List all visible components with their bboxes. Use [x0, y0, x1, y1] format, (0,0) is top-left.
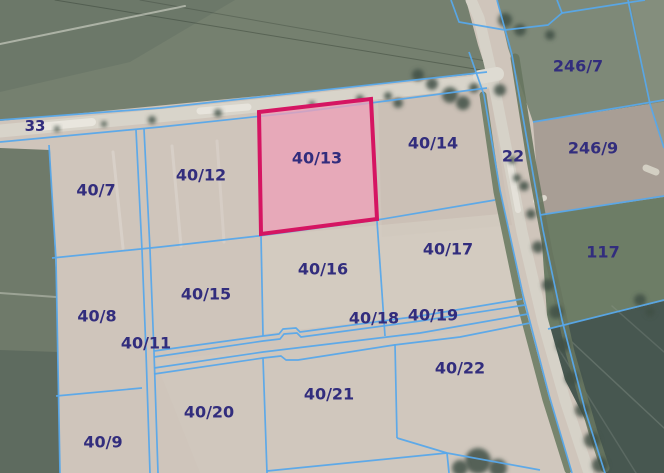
tree-clump	[519, 181, 529, 191]
parcel-label-40-7[interactable]: 40/7	[76, 181, 115, 200]
road-33-bright-1	[38, 122, 92, 127]
tree-clump	[426, 78, 438, 90]
parcel-label-40-15[interactable]: 40/15	[181, 285, 231, 304]
parcel-label-33[interactable]: 33	[25, 117, 46, 135]
parcel-label-246-7[interactable]: 246/7	[553, 57, 603, 76]
tree-clump	[469, 83, 479, 93]
cadastral-map-viewport: 3340/740/1240/1340/1422246/7246/911740/1…	[0, 0, 664, 473]
tree-clump	[214, 109, 222, 117]
tree-clump	[494, 84, 506, 96]
tree-clump	[542, 279, 554, 291]
parcel-label-40-22[interactable]: 40/22	[435, 359, 485, 378]
parcel-label-40-11[interactable]: 40/11	[121, 334, 171, 353]
parcel-label-40-13[interactable]: 40/13	[292, 149, 342, 168]
tree-clump	[545, 30, 555, 40]
tree-clump	[384, 92, 392, 100]
parcel-label-40-8[interactable]: 40/8	[77, 307, 116, 326]
tree-clump	[148, 116, 156, 124]
parcel-label-117[interactable]: 117	[586, 243, 619, 262]
parcel-label-40-19[interactable]: 40/19	[408, 306, 458, 325]
tree-clump	[513, 174, 521, 182]
parcel-label-40-20[interactable]: 40/20	[184, 403, 234, 422]
tree-clump	[514, 24, 526, 36]
tree-clump	[456, 96, 470, 110]
map-canvas[interactable]: 3340/740/1240/1340/1422246/7246/911740/1…	[0, 0, 664, 473]
parcel-label-40-17[interactable]: 40/17	[423, 240, 473, 259]
parcel-label-40-16[interactable]: 40/16	[298, 260, 348, 279]
parcel-label-246-9[interactable]: 246/9	[568, 139, 618, 158]
parcel-label-40-21[interactable]: 40/21	[304, 385, 354, 404]
tree-clump	[498, 13, 512, 27]
tree-clump	[526, 209, 536, 219]
texture-shed-246-9	[646, 168, 656, 172]
parcel-label-40-12[interactable]: 40/12	[176, 166, 226, 185]
tree-clump	[532, 241, 544, 253]
parcel-label-40-14[interactable]: 40/14	[408, 134, 458, 153]
region-left-vegetation-dark	[0, 350, 60, 473]
parcel-label-22[interactable]: 22	[502, 147, 524, 166]
tree-clump	[54, 126, 60, 132]
road-junction	[480, 74, 497, 77]
tree-clump	[101, 121, 107, 127]
tree-clump	[442, 87, 458, 103]
parcel-label-40-18[interactable]: 40/18	[349, 309, 399, 328]
tree-clump	[645, 307, 655, 317]
parcel-label-40-9[interactable]: 40/9	[83, 433, 122, 452]
road-33-bright-2	[200, 107, 248, 111]
